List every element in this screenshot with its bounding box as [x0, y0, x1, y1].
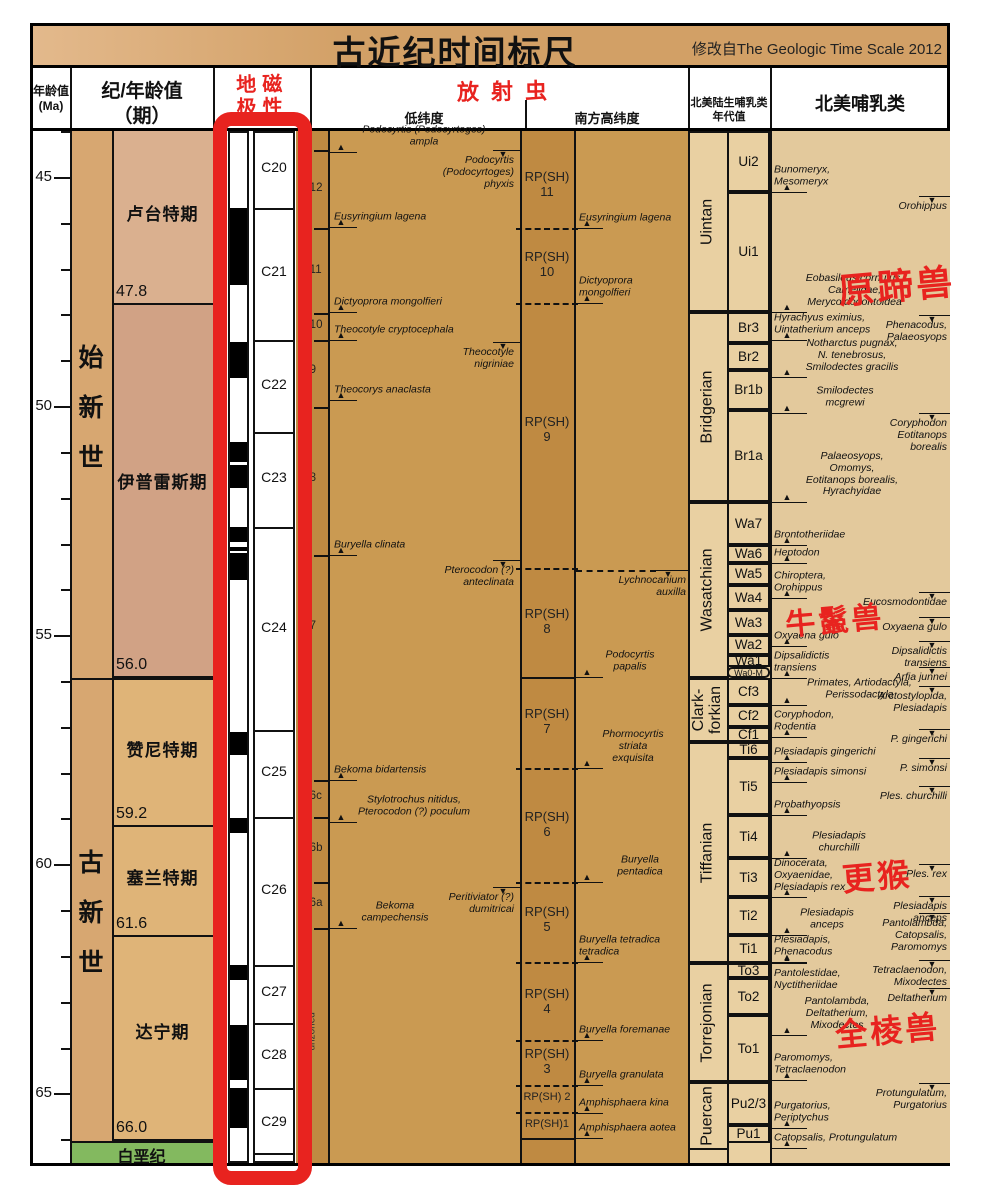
- mammal-species-label: Orohippus: [775, 201, 947, 213]
- lowlat-species-label: Bekoma campechensis: [340, 901, 450, 925]
- nalma-zone-label: To1: [727, 1041, 770, 1057]
- south-species-label: Phormocyrtis striata exquisita: [588, 729, 678, 764]
- nalma-zone-label: Pu1: [727, 1126, 770, 1142]
- south-species-label: Amphisphaera aotea: [579, 1122, 689, 1134]
- rp-zone-label: RP(SH) 10: [518, 250, 576, 280]
- stage-label: 塞兰特期: [114, 864, 211, 888]
- south-first-appearance-icon: ▲: [581, 872, 593, 882]
- age-major-tick: [54, 177, 70, 179]
- age-minor-tick: [61, 223, 70, 225]
- lowlat-event-line: [328, 312, 357, 313]
- mammal-species-label: Paromomys, Tetraclaenodon: [774, 1053, 954, 1077]
- nalma-zone-label: Wa7: [727, 516, 770, 532]
- epoch-label: 始 新 世: [74, 333, 108, 483]
- age-major-tick: [54, 635, 70, 637]
- boundary-age-label: 66.0: [116, 1119, 176, 1139]
- rp-dashed-boundary: [516, 962, 578, 964]
- age-tick-label: 55: [30, 626, 52, 642]
- boundary-age-label: 47.8: [116, 283, 176, 303]
- lowlat-species-label: Dictyoprora mongolfieri: [334, 296, 519, 308]
- south-species-label: Buryella pentadica: [600, 855, 680, 879]
- header-south-high-latitude: 南方高纬度: [527, 108, 687, 127]
- nalma-group-label: Uintan: [700, 198, 717, 244]
- mammal-event-line: [770, 782, 807, 783]
- epoch-boundary-line: [70, 678, 213, 680]
- mammal-species-label: Protungulatum, Purgatorius: [775, 1088, 947, 1112]
- age-major-tick: [54, 1093, 70, 1095]
- nalma-zone-label: Ti4: [727, 829, 770, 845]
- age-minor-tick: [61, 589, 70, 591]
- rp-zone-label: RP(SH)1: [518, 1118, 576, 1132]
- south-species-label: Buryella foremanae: [579, 1024, 689, 1036]
- lowlat-species-label: Pterocodon (?) anteclinata: [344, 565, 514, 589]
- age-minor-tick: [61, 1002, 70, 1004]
- age-major-tick: [54, 864, 70, 866]
- lowlat-species-label: Theocorys anaclasta: [334, 384, 519, 396]
- lowlat-species-label: Stylotrochus nitidus, Pterocodon (?) poc…: [334, 795, 494, 819]
- mammal-event-line: [770, 563, 807, 564]
- boundary-age-label: 59.2: [116, 805, 176, 825]
- handwritten-annotation: 更猴: [840, 849, 914, 901]
- nalma-group-label: Tiffanian: [700, 822, 717, 882]
- column-line: [70, 131, 72, 1163]
- mammal-species-label: Ples. churchilli: [775, 791, 947, 803]
- handwritten-annotation: 全棱兽: [833, 1002, 942, 1057]
- mammal-event-line: [770, 1148, 807, 1149]
- south-event-line: [574, 303, 603, 304]
- mammal-event-line: [770, 377, 807, 378]
- rp-zone-label: RP(SH) 3: [518, 1047, 576, 1077]
- nalma-zone-label: Ui1: [727, 244, 770, 260]
- rp-dashed-boundary: [516, 1040, 578, 1042]
- chart-title: 古近纪时间标尺: [205, 26, 705, 74]
- south-event-line: [574, 1113, 603, 1114]
- mammal-species-label: Pantolambda, Catopsalis, Paromomys: [775, 918, 947, 953]
- polarity-highlight-box: [213, 112, 312, 1185]
- south-species-label: Buryella tetradica tetradica: [579, 935, 689, 959]
- nalma-zone-label: Br1a: [727, 448, 770, 464]
- south-species-label: Lychnocanium auxilla: [581, 575, 686, 599]
- stage-label: 卢台特期: [114, 200, 211, 224]
- boundary-age-label: 56.0: [116, 656, 176, 676]
- age-minor-tick: [61, 360, 70, 362]
- lowlat-species-label: Podocyrtis (Podocyrtoges) ampla: [334, 125, 514, 149]
- rp-zone-label: RP(SH) 5: [518, 905, 576, 935]
- south-species-label: Eusyringium lagena: [579, 212, 689, 224]
- lowlat-event-line: [328, 227, 357, 228]
- south-species-label: Buryella granulata: [579, 1069, 689, 1081]
- nalma-group-label: Wasatchian: [700, 549, 717, 632]
- mammal-event-line: [770, 1128, 807, 1129]
- mammal-species-label: Arctostylopida, Plesiadapis: [775, 691, 947, 715]
- rp-zone-label: RP(SH) 9: [518, 415, 576, 445]
- boundary-age-label: 61.6: [116, 915, 176, 935]
- south-event-line: [574, 1085, 603, 1086]
- mammal-event-line: [770, 1035, 807, 1036]
- lowlat-event-line: [328, 152, 357, 153]
- header-age: 年龄值 (Ma): [33, 84, 69, 114]
- age-minor-tick: [61, 452, 70, 454]
- mammal-species-label: Smilodectes mcgrewi: [790, 386, 900, 410]
- age-minor-tick: [61, 681, 70, 683]
- rp-zone-label: RP(SH) 7: [518, 707, 576, 737]
- nalma-zone-label: Ui2: [727, 154, 770, 170]
- age-major-tick: [54, 406, 70, 408]
- epoch-label: 古 新 世: [74, 838, 108, 988]
- nalma-zone-label: To3: [727, 963, 770, 979]
- mammal-species-label: Bunomeryx, Mesomeryx: [774, 165, 954, 189]
- age-minor-tick: [61, 131, 70, 133]
- age-minor-tick: [61, 818, 70, 820]
- age-minor-tick: [61, 1139, 70, 1141]
- mammal-event-line: [770, 502, 807, 503]
- mammal-species-label: Plesiadapis churchilli: [784, 831, 894, 855]
- nalma-zone-label: Ti3: [727, 870, 770, 886]
- lowlat-event-line: [328, 555, 357, 556]
- rp-zone-label: RP(SH) 2: [518, 1091, 576, 1105]
- rp-zone-label: RP(SH) 11: [518, 170, 576, 200]
- rp-solid-boundary: [520, 1138, 574, 1140]
- nalma-zone-label: Cf1: [727, 727, 770, 743]
- age-minor-tick: [61, 498, 70, 500]
- rp-dashed-boundary: [516, 568, 578, 570]
- nalma-zone-label: Pu2/3: [727, 1096, 770, 1112]
- age-minor-tick: [61, 910, 70, 912]
- header-radiolarian: 放射虫: [330, 71, 687, 109]
- age-tick-label: 60: [30, 855, 52, 871]
- south-event-line: [574, 1138, 603, 1139]
- mammal-species-label: Dipsalidictis transiens: [775, 646, 947, 670]
- south-event-line: [574, 962, 603, 963]
- nalma-zone-label: Ti2: [727, 908, 770, 924]
- cretaceous-label: 白垩纪: [70, 1143, 213, 1163]
- mammal-species-label: Arfia junnei: [775, 672, 947, 684]
- nalma-zone-label: Wa4: [727, 590, 770, 606]
- epoch-column: [70, 131, 112, 1141]
- age-minor-tick: [61, 544, 70, 546]
- nalma-zone-label: Wa5: [727, 566, 770, 582]
- rp-zone-label: RP(SH) 6: [518, 810, 576, 840]
- mammal-species-label: Coryphodon Eotitanops borealis: [775, 418, 947, 453]
- handwritten-annotation: 原蹄兽: [836, 253, 957, 315]
- lowlat-species-label: Theocotyle cryptocephala: [334, 324, 519, 336]
- pzone-tick: [314, 882, 330, 884]
- header-period: 纪/年龄值 （期）: [72, 80, 212, 129]
- mammal-species-label: Brontotheriidae: [774, 529, 954, 541]
- nalma-zone-label: Ti6: [727, 742, 770, 758]
- stage-label: 伊普雷斯期: [114, 468, 211, 492]
- mammal-species-label: P. simonsi: [775, 763, 947, 775]
- lowlat-column: [328, 131, 520, 1163]
- age-minor-tick: [61, 314, 70, 316]
- age-minor-tick: [61, 1048, 70, 1050]
- pzone-tick: [314, 407, 330, 409]
- lowlat-event-line: [328, 822, 357, 823]
- mammal-species-label: P. gingerichi: [775, 734, 947, 746]
- age-tick-label: 50: [30, 397, 52, 413]
- header-nalma: 北美陆生哺乳类 年代值: [689, 96, 769, 125]
- south-species-label: Amphisphaera kina: [579, 1097, 689, 1109]
- rp-long-dash: [576, 570, 656, 572]
- lowlat-species-label: Theocotyle nigriniae: [344, 347, 514, 371]
- mammal-event-line: [770, 897, 807, 898]
- rp-dashed-boundary: [516, 303, 578, 305]
- age-minor-tick: [61, 727, 70, 729]
- age-column: [33, 131, 70, 1163]
- rp-dashed-boundary: [516, 228, 578, 230]
- south-event-line: [574, 677, 603, 678]
- mammal-event-line: [770, 963, 807, 964]
- lowlat-species-label: Podocyrtis (Podocyrtoges) phyxis: [344, 155, 514, 190]
- lowlat-species-label: Buryella clinata: [334, 539, 519, 551]
- nalma-zone-label: Ti5: [727, 779, 770, 795]
- south-species-label: Podocyrtis papalis: [590, 650, 670, 674]
- mammal-event-line: [770, 413, 807, 414]
- mammal-event-line: [770, 192, 807, 193]
- lowlat-species-label: Eusyringium lagena: [334, 211, 519, 223]
- handwritten-annotation: 牛鬣兽: [783, 592, 885, 644]
- south-species-label: Dictyoprora mongolfieri: [579, 276, 689, 300]
- column-line: [328, 131, 330, 1163]
- nalma-zone-label: Wa6: [727, 546, 770, 562]
- rp-dashed-boundary: [516, 1085, 578, 1087]
- rp-dashed-boundary: [516, 1112, 578, 1114]
- nalma-zone-label: Wa2: [727, 637, 770, 653]
- mammal-species-label: Tetraclaenodon, Mixodectes: [775, 965, 947, 989]
- paleogene-timescale-chart: 古近纪时间标尺 修改自The Geologic Time Scale 2012 …: [0, 0, 982, 1200]
- mammal-species-label: Phenacodus, Palaeosyops: [775, 320, 947, 344]
- lowlat-event-line: [328, 400, 357, 401]
- rp-zone-label: RP(SH) 4: [518, 987, 576, 1017]
- stage-label: 达宁期: [114, 1018, 211, 1042]
- age-minor-tick: [61, 269, 70, 271]
- rp-dashed-boundary: [516, 882, 578, 884]
- south-event-line: [574, 228, 603, 229]
- mammal-first-appearance-icon: ▲: [781, 953, 793, 963]
- column-line: [112, 131, 114, 1141]
- rp-zone-label: RP(SH) 8: [518, 607, 576, 637]
- nalma-group-label: Torrejonian: [700, 983, 717, 1062]
- lowlat-species-label: Bekoma bidartensis: [334, 764, 519, 776]
- south-event-line: [574, 768, 603, 769]
- nalma-zone-label: Cf2: [727, 708, 770, 724]
- pzone-tick: [314, 313, 330, 315]
- nalma-zone-label: To2: [727, 989, 770, 1005]
- nalma-zone-label: Cf3: [727, 684, 770, 700]
- rp-dashed-boundary: [516, 768, 578, 770]
- pzone-tick: [314, 817, 330, 819]
- nalma-zone-label: Ti1: [727, 941, 770, 957]
- age-tick-label: 65: [30, 1084, 52, 1100]
- nalma-group-label: Clark- forkian: [691, 686, 725, 734]
- south-event-line: [574, 1040, 603, 1041]
- mammal-species-label: Heptodon: [774, 547, 954, 559]
- mammal-event-line: [770, 1080, 807, 1081]
- nalma-group-label: Bridgerian: [700, 371, 717, 444]
- south-event-line: [574, 882, 603, 883]
- age-minor-tick: [61, 956, 70, 958]
- pzone-tick: [314, 228, 330, 230]
- age-tick-label: 45: [30, 168, 52, 184]
- lowlat-event-line: [328, 340, 357, 341]
- age-minor-tick: [61, 773, 70, 775]
- mammal-event-line: [770, 815, 807, 816]
- stage-label: 赞尼特期: [114, 736, 211, 760]
- nalma-zone-label: Br2: [727, 349, 770, 365]
- source-note: 修改自The Geologic Time Scale 2012: [692, 38, 942, 59]
- rp-solid-boundary: [520, 677, 574, 679]
- header-mammal: 北美哺乳类: [772, 90, 948, 116]
- lowlat-event-line: [328, 928, 357, 929]
- lowlat-event-line: [328, 780, 357, 781]
- nalma-zone-label: Br1b: [727, 382, 770, 398]
- nalma-zone-label: Wa3: [727, 615, 770, 631]
- nalma-group-label: Puercan: [700, 1086, 717, 1146]
- nalma-zone-label: Br3: [727, 320, 770, 336]
- mammal-species-label: Catopsalis, Protungulatum: [774, 1132, 954, 1144]
- mammal-species-label: Palaeosyops, Omomys, Eotitanops borealis…: [772, 451, 932, 498]
